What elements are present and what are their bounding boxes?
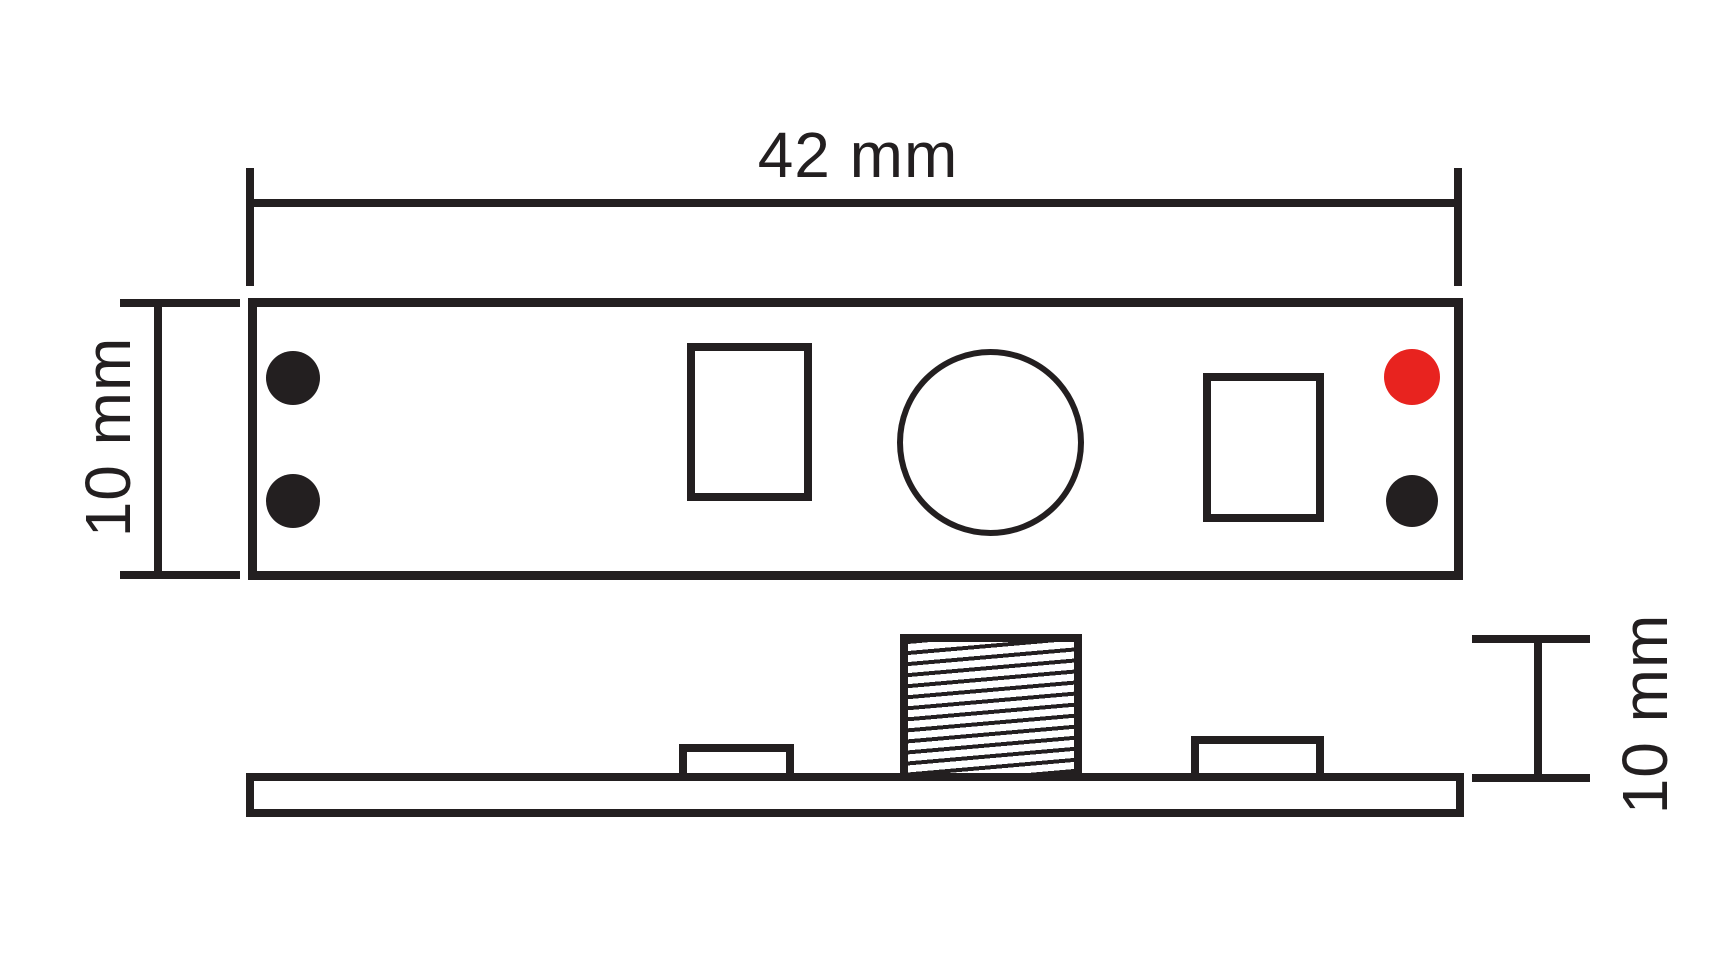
dim-width-extension-left: [246, 168, 254, 286]
component-chip-left: [687, 343, 812, 501]
pcb-dimension-drawing: 42 mm 10 mm 10 mm: [0, 0, 1720, 969]
smd-component-low-left: [679, 744, 794, 773]
solder-pad-right-bottom: [1386, 475, 1438, 527]
dim-width-label: 42 mm: [658, 122, 1058, 188]
dim-side-height-label: 10 mm: [1612, 564, 1678, 864]
component-chip-right: [1203, 373, 1324, 522]
dim-side-height-tick-top: [1472, 635, 1590, 643]
tall-component-hatched: [900, 634, 1082, 773]
solder-pad-left-top: [266, 351, 320, 405]
dim-height-label: 10 mm: [75, 287, 141, 587]
dim-side-height-line: [1534, 635, 1542, 782]
pcb-board-outline-side: [246, 773, 1464, 817]
touch-sensor-circle: [897, 349, 1084, 536]
smd-component-low-right: [1191, 736, 1324, 773]
dim-side-height-tick-bottom: [1472, 774, 1590, 782]
dim-width-line: [246, 199, 1462, 207]
dim-width-extension-right: [1454, 168, 1462, 286]
solder-pad-left-bottom: [266, 474, 320, 528]
dim-height-line: [154, 299, 162, 579]
led-indicator-red: [1384, 349, 1440, 405]
